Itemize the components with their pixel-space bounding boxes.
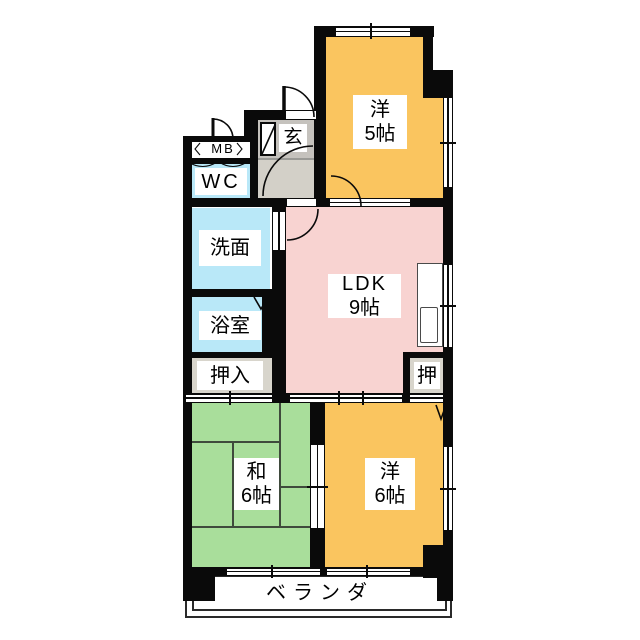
window-tick xyxy=(366,565,368,578)
room-name: 玄 xyxy=(283,127,302,150)
room-size: 6帖 xyxy=(241,484,272,508)
room-label-western6: 洋 6帖 xyxy=(365,458,415,510)
wall xyxy=(183,352,272,358)
wall xyxy=(183,567,215,601)
room-name: 浴室 xyxy=(210,314,250,338)
window-tick xyxy=(362,391,364,405)
room-name: LDK xyxy=(342,272,387,296)
wall xyxy=(403,352,410,403)
sliding-door xyxy=(330,199,410,206)
room-label-wc: WC xyxy=(195,168,247,195)
room-name: 和 xyxy=(247,460,267,484)
floor-plan: 洋 5帖 LDK 9帖 和 6帖 洋 6帖 WC 洗面 浴室 押入 押 玄 MB… xyxy=(0,0,640,640)
door-opening xyxy=(273,212,285,250)
window-tick xyxy=(307,486,328,488)
sliding-door xyxy=(410,395,443,402)
room-label-japanese6: 和 6帖 xyxy=(234,458,279,510)
room-label-closet-small: 押 xyxy=(414,362,440,389)
wall xyxy=(250,110,258,199)
tatami-line xyxy=(192,441,280,443)
window-tick xyxy=(370,23,372,39)
window-tick xyxy=(440,488,456,490)
room-name: ベランダ xyxy=(266,581,374,605)
room-label-western5: 洋 5帖 xyxy=(353,95,407,149)
window-tick xyxy=(338,391,340,405)
wall xyxy=(183,158,250,164)
tatami-line xyxy=(192,526,310,528)
corner-notch xyxy=(433,37,444,70)
entrance-hall xyxy=(258,160,314,198)
room-name: MB xyxy=(211,141,235,157)
room-name: 洋 xyxy=(380,460,400,484)
room-label-bathroom: 浴室 xyxy=(199,311,261,340)
sliding-door xyxy=(290,395,402,402)
room-label-meter-box: MB xyxy=(202,140,244,157)
window xyxy=(336,28,410,36)
room-size: 5帖 xyxy=(364,122,395,146)
room-label-ldk: LDK 9帖 xyxy=(328,274,401,318)
room-name: 洋 xyxy=(370,98,390,122)
room-label-entrance: 玄 xyxy=(279,124,307,152)
window-tick xyxy=(271,565,273,578)
tatami-line xyxy=(279,486,310,488)
wall xyxy=(262,289,272,358)
window-tick xyxy=(440,305,456,307)
wall xyxy=(437,578,452,601)
entrance-step-line xyxy=(258,158,314,160)
wall xyxy=(423,545,453,578)
tatami-line xyxy=(279,403,281,527)
room-label-veranda: ベランダ xyxy=(230,580,410,606)
window-tick xyxy=(229,391,231,405)
wall xyxy=(403,352,443,358)
window-tick xyxy=(440,142,456,144)
wall xyxy=(183,289,272,297)
room-size: 9帖 xyxy=(349,296,380,320)
room-name: 押 xyxy=(417,364,437,388)
room-name: 押入 xyxy=(210,364,250,388)
door-opening xyxy=(286,111,316,119)
room-name: 洗面 xyxy=(210,236,250,260)
room-size: 6帖 xyxy=(374,484,405,508)
wall xyxy=(423,26,433,70)
meter-box-chevron xyxy=(195,143,200,155)
shoe-cabinet xyxy=(260,122,276,156)
window xyxy=(327,569,410,575)
room-label-closet: 押入 xyxy=(197,361,263,390)
door-opening xyxy=(287,199,316,206)
window xyxy=(227,569,320,575)
room-name: WC xyxy=(201,170,240,194)
room-label-washroom: 洗面 xyxy=(199,230,261,266)
kitchen-sink xyxy=(420,307,438,343)
